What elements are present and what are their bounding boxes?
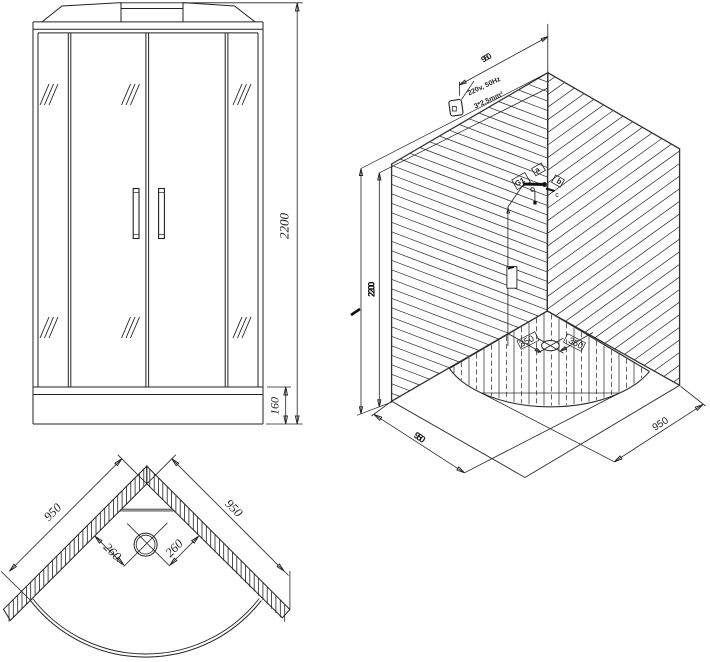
svg-text:2200: 2200 <box>367 282 377 297</box>
svg-text:160: 160 <box>268 397 282 415</box>
svg-text:2200: 2200 <box>277 213 292 240</box>
svg-text:c: c <box>555 192 559 199</box>
